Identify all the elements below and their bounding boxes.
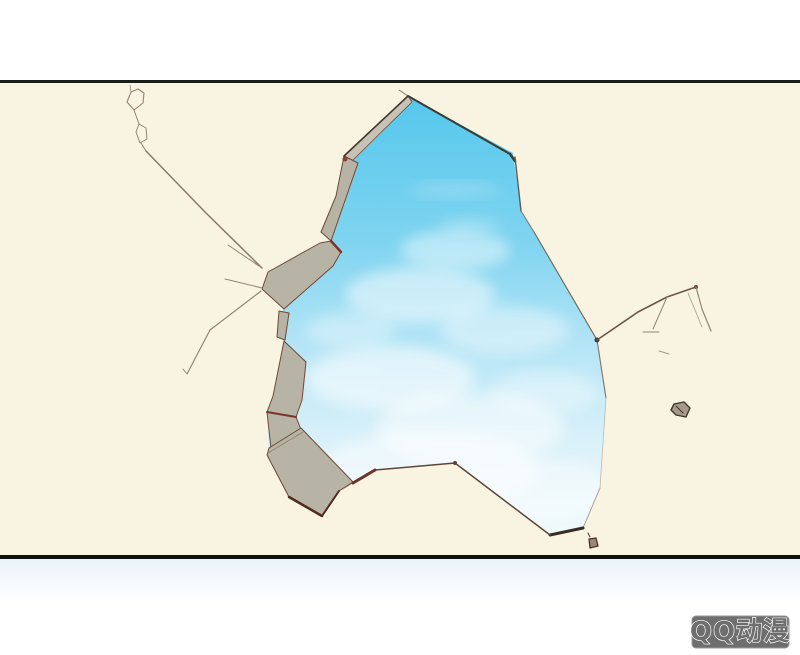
panel-frame-bottom-line <box>0 555 800 559</box>
bottom-sky-band <box>0 559 800 605</box>
cloud <box>410 185 500 195</box>
watermark-label: QQ动漫 <box>690 617 790 647</box>
cloud <box>305 312 395 348</box>
comic-panel-art: QQ动漫 <box>0 0 800 655</box>
cloud <box>400 230 510 270</box>
comic-panel-page: QQ动漫 <box>0 0 800 655</box>
edge-node-dot <box>453 461 457 465</box>
cloud <box>440 219 500 231</box>
panel-frame-top-line <box>0 80 800 83</box>
debris-accent-dot <box>343 157 348 162</box>
cloud <box>440 306 570 354</box>
debris-speck <box>589 538 598 548</box>
watermark: QQ动漫 <box>690 616 790 648</box>
